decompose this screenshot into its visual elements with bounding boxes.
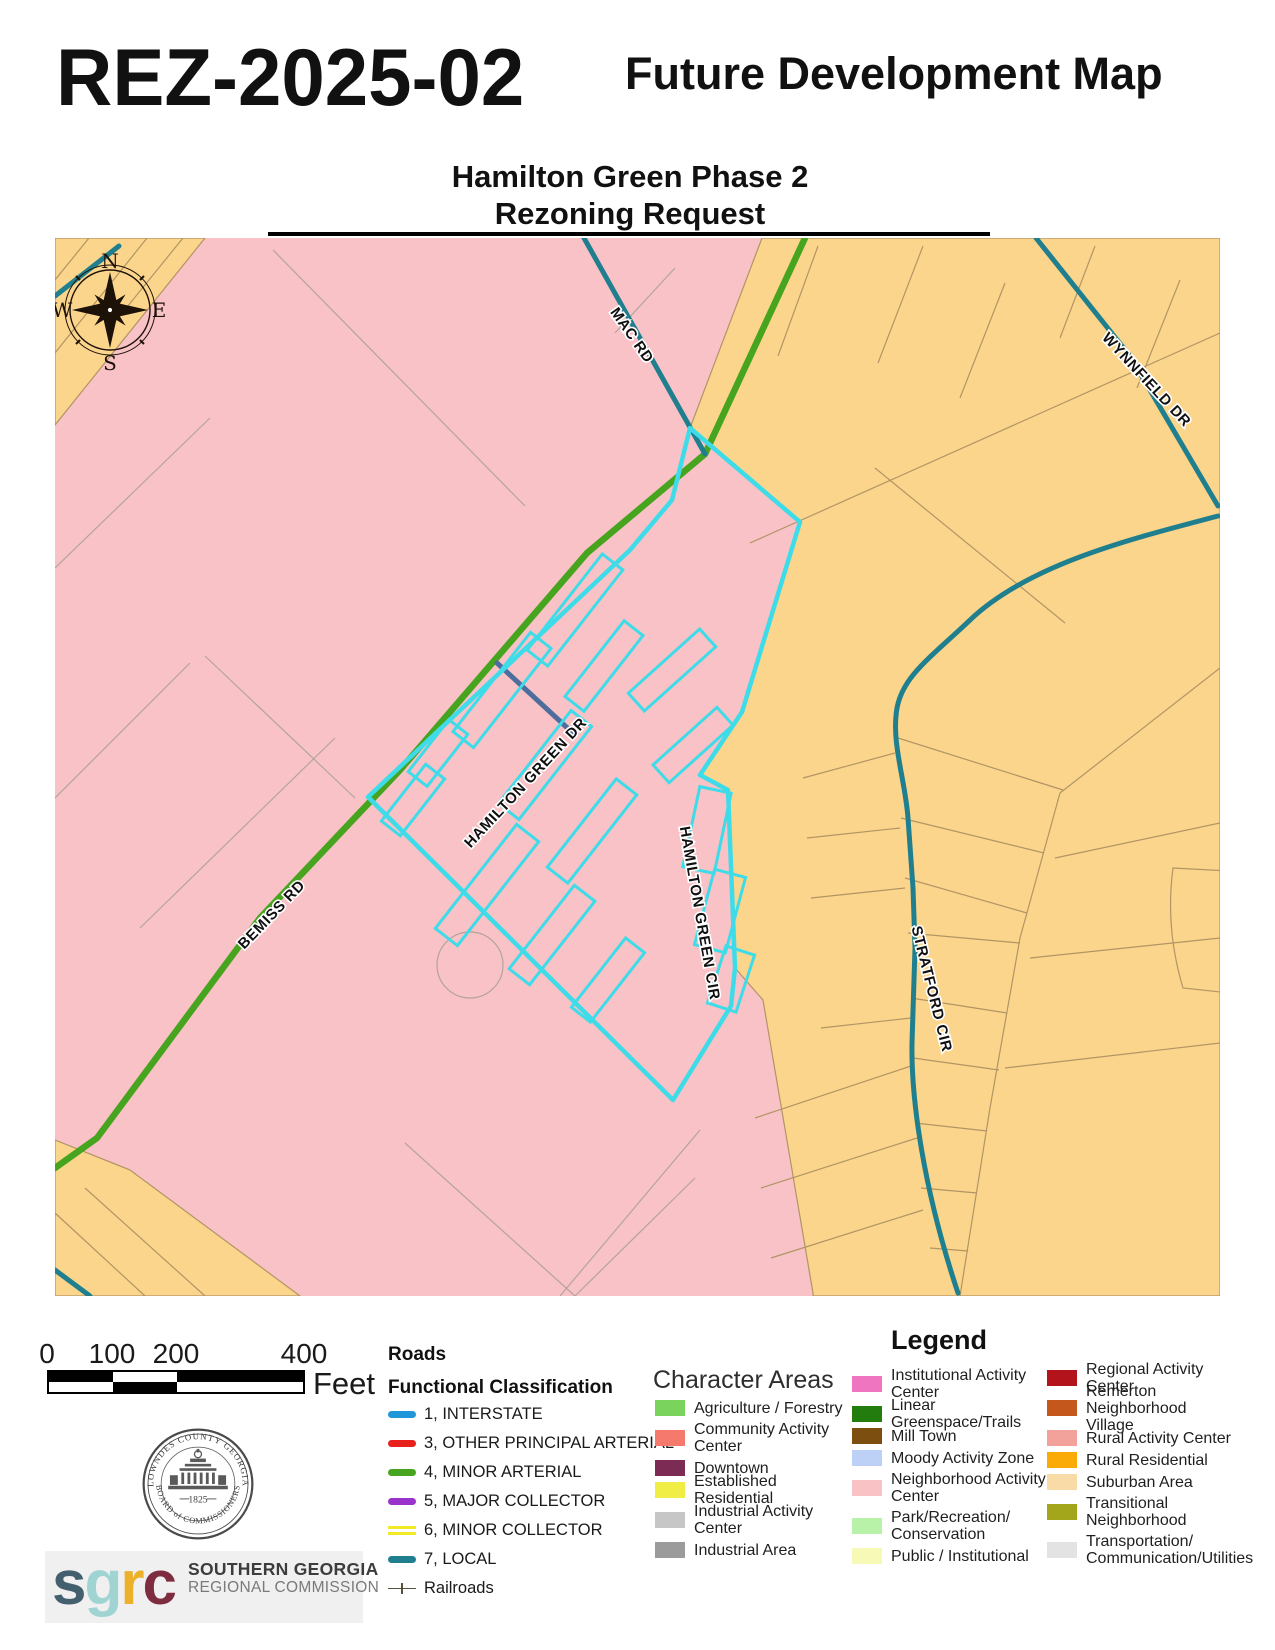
legend-row: Established Residential	[655, 1481, 855, 1499]
legend-label: Transitional Neighborhood	[1086, 1495, 1187, 1529]
legend-label: Community Activity Center	[694, 1421, 829, 1455]
legend-swatch	[655, 1542, 685, 1558]
road-legend-row-interstate: 1, INTERSTATE	[388, 1404, 648, 1424]
legend-swatch	[655, 1430, 685, 1446]
legend-label: Suburban Area	[1086, 1474, 1193, 1491]
road-legend-label: 6, MINOR COLLECTOR	[424, 1521, 602, 1540]
legend-row: Rural Activity Center	[1047, 1429, 1247, 1447]
sgrc-letter-g: g	[84, 1549, 120, 1618]
scale-unit: Feet	[313, 1366, 375, 1402]
legend-row: Transportation/ Communication/Utilities	[1047, 1533, 1247, 1567]
minor-arterial-line-sample	[388, 1469, 416, 1476]
lowndes-county-seal: LOWNDES COUNTY GEORGIA BOARD of COMMISSI…	[141, 1427, 255, 1541]
character-areas-column-3: Regional Activity Center Remerton Neighb…	[1047, 1369, 1247, 1571]
road-legend-label: Railroads	[424, 1579, 494, 1598]
compass-n: N	[101, 249, 119, 273]
subtitle-line1: Hamilton Green Phase 2	[270, 158, 990, 195]
legend-row: Transitional Neighborhood	[1047, 1495, 1247, 1529]
road-legend-row-principal-arterial: 3, OTHER PRINCIPAL ARTERIAL	[388, 1433, 648, 1453]
legend-label: Transportation/ Communication/Utilities	[1086, 1533, 1253, 1567]
legend-row: Public / Institutional	[852, 1547, 1052, 1565]
character-areas-column-1: Agriculture / Forestry Community Activit…	[655, 1399, 855, 1563]
legend-swatch	[1047, 1452, 1077, 1468]
legend-row: Neighborhood Activity Center	[852, 1471, 1052, 1505]
subtitle-underline	[268, 232, 990, 236]
scale-tick-200: 200	[153, 1338, 200, 1370]
legend-label: Institutional Activity Center	[891, 1367, 1026, 1401]
legend-row: Industrial Area	[655, 1541, 855, 1559]
legend-row: Park/Recreation/ Conservation	[852, 1509, 1052, 1543]
legend-label: Neighborhood Activity Center	[891, 1471, 1046, 1505]
legend-swatch	[1047, 1430, 1077, 1446]
sgrc-wordmark: sgrc	[52, 1548, 175, 1620]
legend-row: Remerton Neighborhood Village	[1047, 1391, 1247, 1425]
road-legend-label: 4, MINOR ARTERIAL	[424, 1463, 581, 1482]
legend-label: Remerton Neighborhood Village	[1086, 1383, 1247, 1434]
legend-row: Suburban Area	[1047, 1473, 1247, 1491]
scale-tick-100: 100	[89, 1338, 136, 1370]
legend-label: Agriculture / Forestry	[694, 1400, 842, 1417]
legend-swatch	[852, 1428, 882, 1444]
sgrc-letter-s: s	[52, 1549, 84, 1618]
legend-swatch	[1047, 1504, 1077, 1520]
legend-swatch	[852, 1548, 882, 1564]
legend-row: Rural Residential	[1047, 1451, 1247, 1469]
legend-swatch	[852, 1518, 882, 1534]
legend-swatch	[655, 1460, 685, 1476]
case-number: REZ-2025-02	[56, 30, 524, 125]
road-legend-row-minor-collector: 6, MINOR COLLECTOR	[388, 1520, 648, 1540]
legend-row: Community Activity Center	[655, 1421, 855, 1455]
sgrc-letter-c: c	[143, 1549, 175, 1618]
legend-row: Industrial Activity Center	[655, 1503, 855, 1537]
roads-legend-title: Roads	[388, 1344, 446, 1366]
page-title: Future Development Map	[625, 48, 1163, 100]
legend-label: Public / Institutional	[891, 1548, 1029, 1565]
sgrc-letter-r: r	[120, 1549, 142, 1618]
legend-label: Linear Greenspace/Trails	[891, 1397, 1052, 1431]
legend-swatch	[655, 1400, 685, 1416]
legend-label: Industrial Activity Center	[694, 1503, 813, 1537]
legend-label: Established Residential	[694, 1473, 855, 1507]
road-legend-label: 5, MAJOR COLLECTOR	[424, 1492, 605, 1511]
scale-bar-graphic	[47, 1370, 305, 1394]
road-legend-row-minor-arterial: 4, MINOR ARTERIAL	[388, 1462, 648, 1482]
legend-row: Moody Activity Zone	[852, 1449, 1052, 1467]
map-canvas: MAC RD WYNNFIELD DR BEMISS RD HAMILTON G…	[55, 238, 1220, 1296]
legend-swatch	[1047, 1542, 1077, 1558]
future-development-map: MAC RD WYNNFIELD DR BEMISS RD HAMILTON G…	[55, 238, 1220, 1296]
legend-label: Rural Activity Center	[1086, 1430, 1231, 1447]
road-legend-label: 3, OTHER PRINCIPAL ARTERIAL	[424, 1434, 674, 1453]
legend-swatch	[1047, 1474, 1077, 1490]
sgrc-name-line2: REGIONAL COMMISSION	[188, 1579, 379, 1597]
road-legend-row-major-collector: 5, MAJOR COLLECTOR	[388, 1491, 648, 1511]
legend-row: Institutional Activity Center	[852, 1367, 1052, 1401]
road-legend-label: 1, INTERSTATE	[424, 1405, 543, 1424]
major-collector-line-sample	[388, 1498, 416, 1505]
legend-swatch	[852, 1376, 882, 1392]
railroad-line-sample	[388, 1583, 416, 1594]
road-legend-label: 7, LOCAL	[424, 1550, 496, 1569]
legend-label: Industrial Area	[694, 1542, 796, 1559]
legend-row: Agriculture / Forestry	[655, 1399, 855, 1417]
rezoning-map-document: REZ-2025-02 Future Development Map Hamil…	[0, 0, 1275, 1650]
road-legend-row-local: 7, LOCAL	[388, 1549, 648, 1569]
roads-legend-items: 1, INTERSTATE 3, OTHER PRINCIPAL ARTERIA…	[388, 1404, 648, 1607]
legend-swatch	[852, 1406, 882, 1422]
legend-swatch	[655, 1482, 685, 1498]
minor-collector-line-sample	[388, 1526, 416, 1535]
compass-s: S	[103, 351, 117, 375]
legend-swatch	[1047, 1370, 1077, 1386]
legend-title: Legend	[891, 1325, 987, 1356]
legend-swatch	[1047, 1400, 1077, 1416]
legend-label: Rural Residential	[1086, 1452, 1208, 1469]
local-line-sample	[388, 1556, 416, 1563]
legend-swatch	[852, 1450, 882, 1466]
road-legend-row-railroads: Railroads	[388, 1578, 648, 1598]
scale-tick-0: 0	[39, 1338, 55, 1370]
legend-label: Mill Town	[891, 1428, 957, 1445]
legend-label: Moody Activity Zone	[891, 1450, 1034, 1467]
legend-label: Park/Recreation/ Conservation	[891, 1509, 1010, 1543]
subtitle-line2: Rezoning Request	[270, 195, 990, 232]
character-areas-title: Character Areas	[653, 1366, 834, 1395]
sgrc-name-line1: SOUTHERN GEORGIA	[188, 1559, 379, 1580]
character-areas-column-2: Institutional Activity Center Linear Gre…	[852, 1367, 1052, 1569]
legend-swatch	[852, 1480, 882, 1496]
compass-w: W	[55, 298, 73, 322]
roads-legend-subtitle: Functional Classification	[388, 1377, 613, 1399]
legend-swatch	[655, 1512, 685, 1528]
compass-e: E	[152, 298, 167, 322]
seal-year: 1825	[188, 1494, 207, 1505]
legend-row: Linear Greenspace/Trails	[852, 1405, 1052, 1423]
map-subtitle: Hamilton Green Phase 2 Rezoning Request	[270, 158, 990, 232]
principal-arterial-line-sample	[388, 1440, 416, 1447]
interstate-line-sample	[388, 1411, 416, 1418]
